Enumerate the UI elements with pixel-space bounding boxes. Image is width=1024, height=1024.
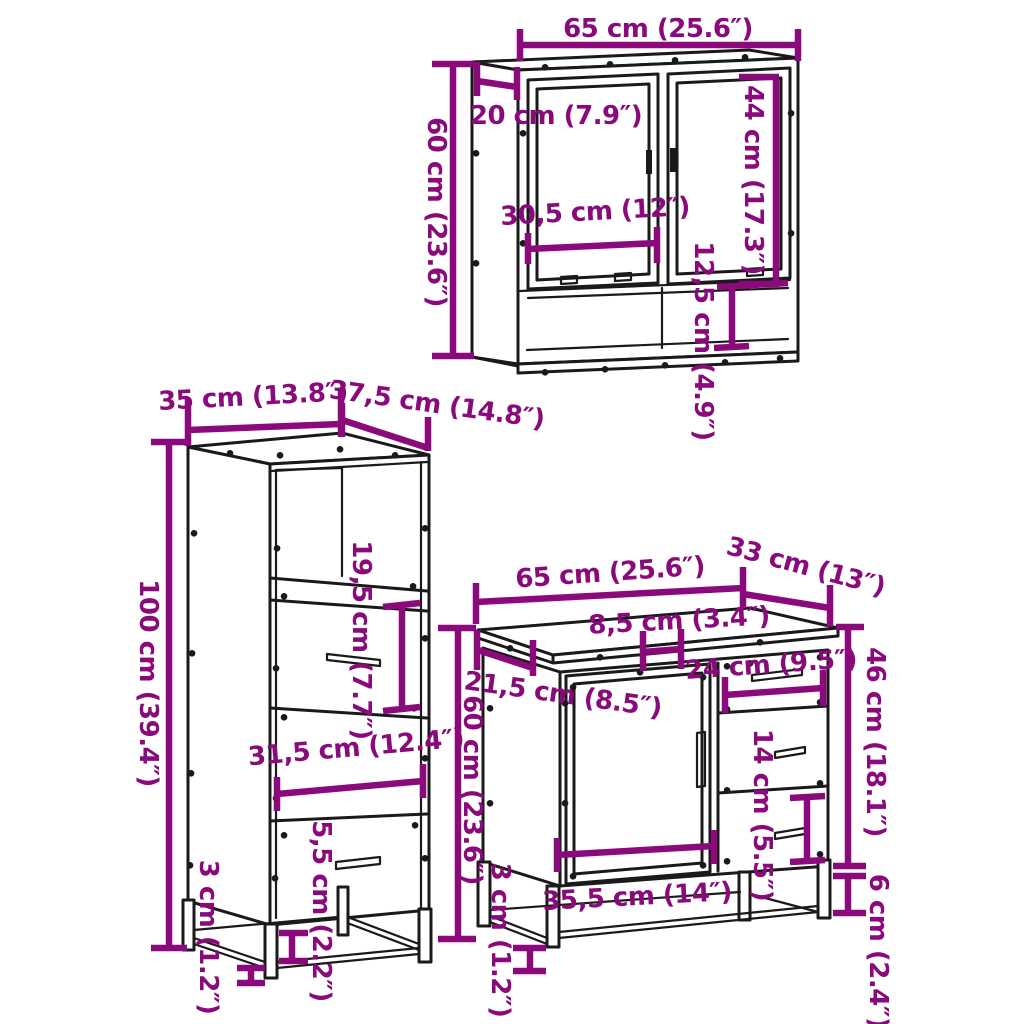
- sink-cabinet: 65 cm (25.6″) 33 cm (13″) 8,5 cm (3.4″) …: [438, 531, 893, 1024]
- dim-label-tall-height: 100 cm (39.4″): [133, 579, 163, 786]
- dim-label-sink-side-height: 46 cm (18.1″): [860, 647, 890, 837]
- dim-line-tall-base-height: [279, 933, 308, 961]
- dim-label-tall-base-height: 5,5 cm (2.2″): [306, 820, 336, 1002]
- dim-label-sink-base-height: 6 cm (2.4″): [863, 874, 893, 1024]
- dim-label-mirror-shelf-height: 12,5 cm (4.9″): [688, 241, 718, 440]
- diagram-canvas: 65 cm (25.6″) 20 cm (7.9″) 60 cm (23.6″)…: [0, 0, 1024, 1024]
- dim-line-sink-leg-height: [513, 948, 546, 971]
- tall-cabinet-side-face: [188, 447, 270, 925]
- dim-label-sink-leg-height: 3 cm (1.2″): [485, 863, 515, 1018]
- dim-label-tall-leg-height: 3 cm (1.2″): [193, 860, 223, 1015]
- dim-line-tall-leg-height: [237, 968, 265, 983]
- dim-label-mirror-depth: 20 cm (7.9″): [470, 101, 642, 131]
- mirror-cabinet: 65 cm (25.6″) 20 cm (7.9″) 60 cm (23.6″)…: [421, 14, 798, 441]
- dim-label-tall-drawer-height: 19,5 cm (7.7″): [346, 540, 376, 739]
- dim-label-mirror-width: 65 cm (25.6″): [563, 14, 753, 44]
- dim-label-sink-width: 65 cm (25.6″): [514, 551, 705, 594]
- dim-label-sink-drawer-width: 24 cm (9.5″): [684, 644, 858, 686]
- dim-label-mirror-height: 60 cm (23.6″): [421, 117, 451, 307]
- dimension-diagram: 65 cm (25.6″) 20 cm (7.9″) 60 cm (23.6″)…: [0, 0, 1024, 1024]
- dim-line-sink-base-height: [833, 876, 866, 913]
- dim-label-sink-drawer-height: 14 cm (5.5″): [747, 729, 777, 901]
- dim-label-mirror-door-height: 44 cm (17.3″): [738, 85, 768, 275]
- dim-label-sink-height: 60 cm (23.6″): [457, 695, 487, 885]
- dim-label-tall-width: 35 cm (13.8″): [157, 377, 348, 417]
